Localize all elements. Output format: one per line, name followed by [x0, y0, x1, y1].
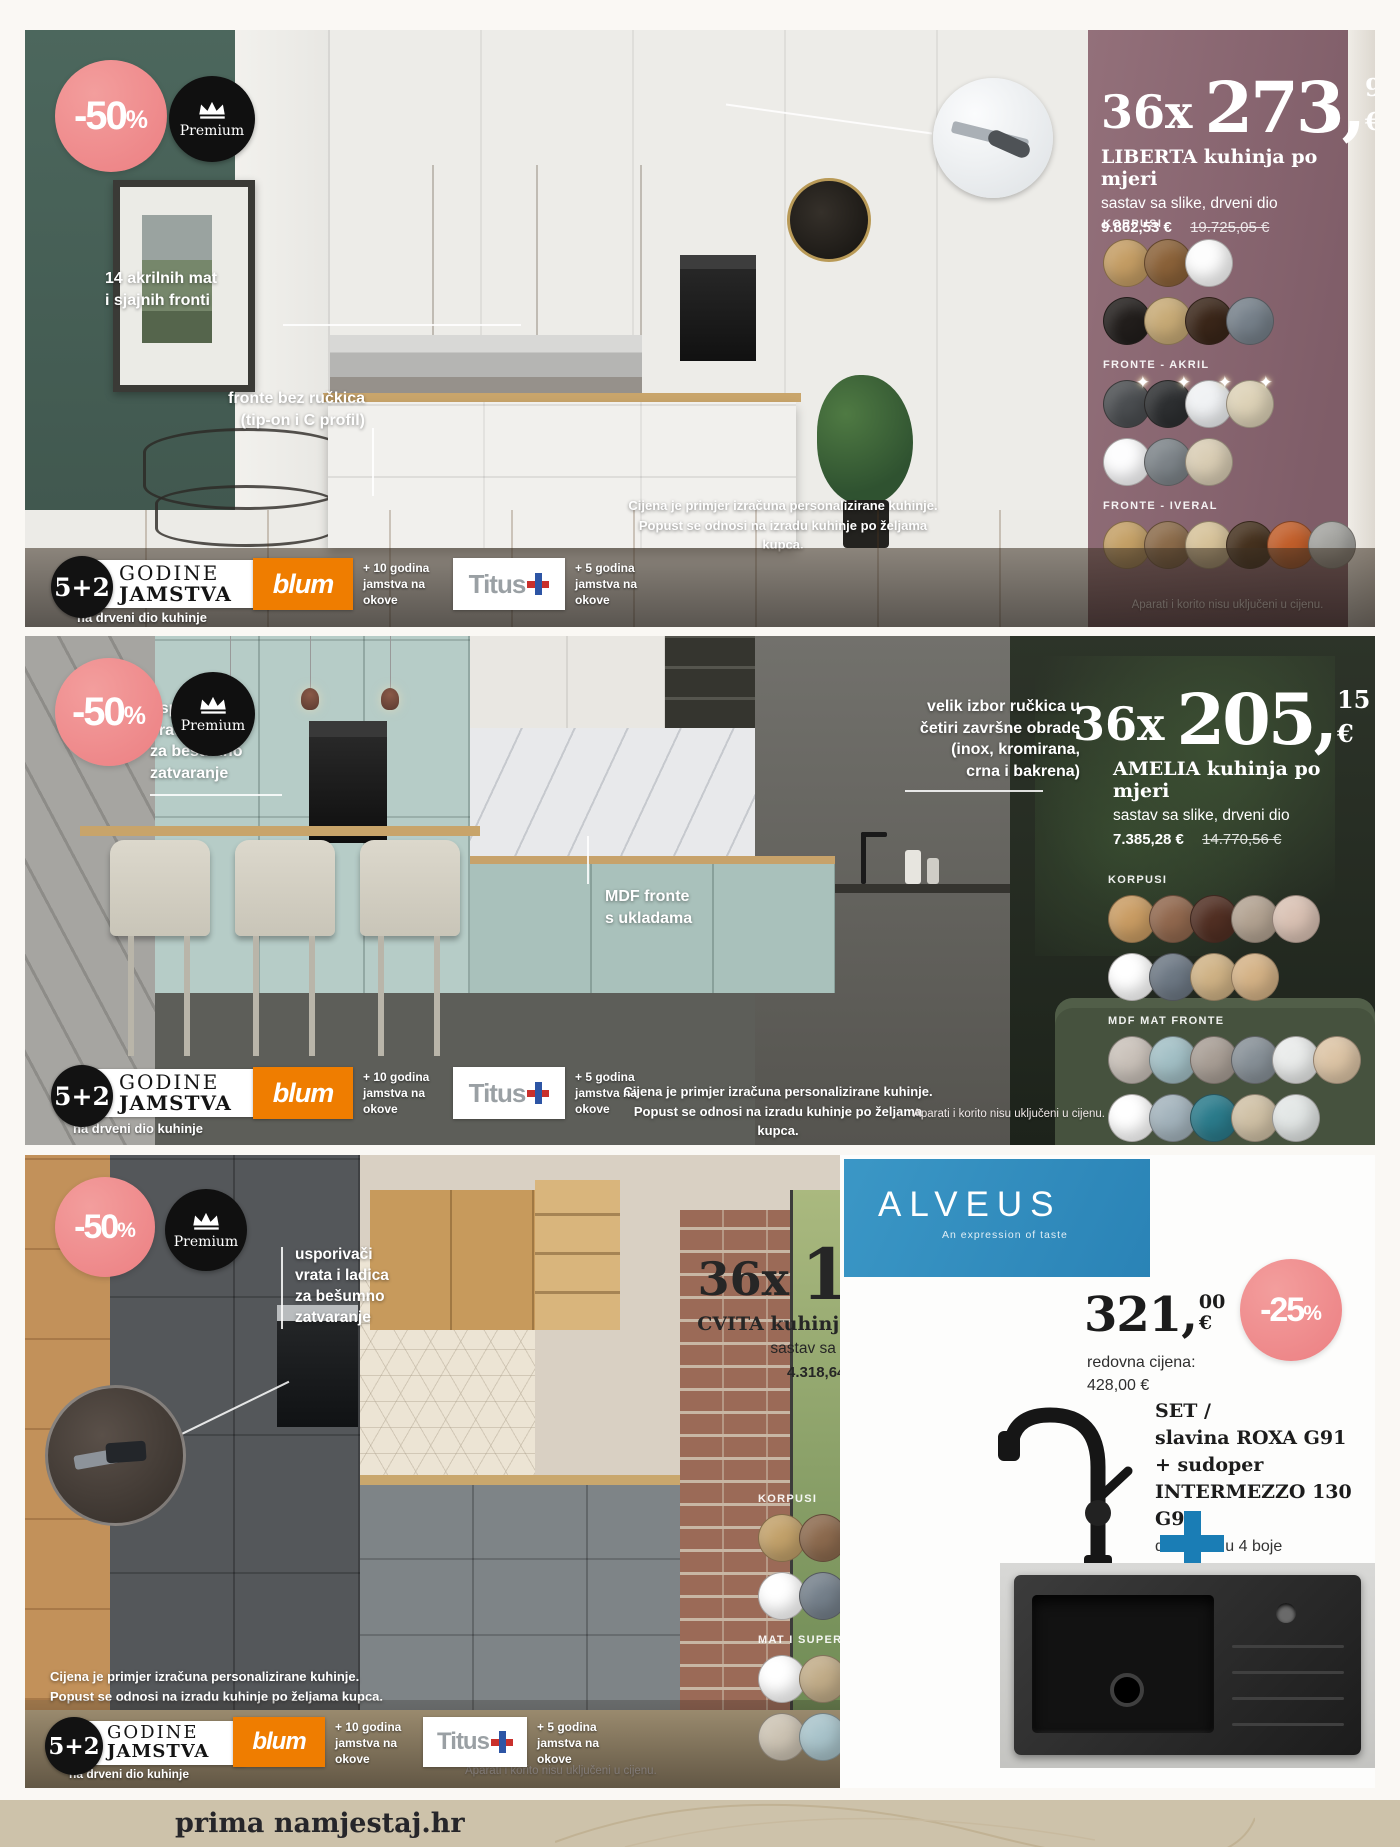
callout-acrylic-fronts: 14 akrilnih mat i sjajnih fronti — [105, 268, 217, 311]
callout-line — [905, 790, 1043, 792]
discount-badge-25: -25% — [1240, 1259, 1342, 1361]
alveus-offer-panel: ALVEUS An expression of taste -25% 321, … — [840, 1155, 1375, 1788]
swatch-group-label: KORPUSI — [1103, 218, 1348, 230]
color-swatch — [1185, 239, 1233, 287]
discount-badge-50: -50% — [55, 1177, 155, 1277]
pendant-light — [310, 636, 311, 688]
hinge-damper-icon — [105, 1441, 146, 1464]
installments-count: 36x — [698, 1261, 789, 1303]
discount-value: -50 — [74, 94, 126, 139]
warranty-years-badge: 5+2 — [45, 1717, 103, 1775]
discount-badge-50: -50% — [55, 658, 163, 766]
percent-sign: % — [124, 702, 146, 731]
swatch-group-label: MDF MAT FRONTE — [1108, 1015, 1368, 1027]
hinge-detail-inset — [45, 1385, 186, 1526]
blum-logo: blum — [253, 558, 353, 610]
price-cents: 00 — [1199, 1293, 1225, 1312]
warranty-years-badge: 5+2 — [51, 1065, 113, 1127]
warranty-label-box: GODINE JAMSTVA — [91, 1069, 269, 1117]
percent-sign: % — [1303, 1302, 1322, 1326]
vase — [927, 858, 939, 884]
installment-price: 36x 205, 15 € — [1073, 688, 1363, 748]
callout-mdf-fronts: MDF fronte s ukladama — [605, 886, 692, 929]
drain-icon — [1110, 1673, 1144, 1707]
built-in-oven — [309, 721, 387, 843]
titus-plus-icon — [527, 573, 549, 595]
callout-handle-finishes: velik izbor ručkica u četiri završne obr… — [845, 696, 1080, 782]
warranty-godine: GODINE — [119, 563, 269, 584]
alveus-tagline: An expression of taste — [942, 1229, 1150, 1241]
swatch-group-label: FRONTE - IVERAL — [1103, 500, 1348, 512]
price-now: 7.385,28 € — [1113, 831, 1184, 848]
premium-label: Premium — [174, 1234, 238, 1250]
installments-count: 36x — [1073, 706, 1164, 748]
installments-count: 36x — [1101, 94, 1192, 136]
swatch-row — [1108, 895, 1368, 941]
pendant-light — [390, 636, 391, 688]
set-label: SET / — [1155, 1398, 1375, 1425]
titus-warranty-note: + 5 godina jamstva na okove — [537, 1719, 599, 1768]
kitchen-name: LIBERTA kuhinja po mjeri — [1101, 146, 1346, 190]
warranty-bar: 5+2 GODINE JAMSTVA na drveni dio kuhinje… — [25, 1703, 840, 1788]
white-upper-cabinets — [470, 636, 665, 728]
currency-symbol: € — [1337, 722, 1370, 746]
premium-label: Premium — [180, 123, 244, 139]
warranty-years-badge: 5+2 — [51, 556, 113, 618]
crown-icon — [189, 1211, 223, 1231]
price-amount: 321, — [1084, 1296, 1197, 1335]
percent-sign: % — [117, 1219, 136, 1243]
currency-symbol: € — [1365, 110, 1375, 134]
countertop — [360, 1475, 700, 1485]
callout-line-vertical — [281, 1247, 283, 1329]
built-in-oven — [680, 255, 756, 361]
color-swatch — [1231, 953, 1279, 1001]
faucet-spout — [861, 832, 887, 837]
round-wall-decor — [787, 178, 871, 262]
swatch-row — [1103, 297, 1348, 343]
black-faucet-image — [980, 1387, 1150, 1572]
decorative-curves — [555, 1800, 1255, 1847]
color-swatch — [1226, 297, 1274, 345]
promo-card-liberta: 36x 273, 96 € LIBERTA kuhinja po mjeri s… — [25, 30, 1375, 627]
titus-wordmark: Titus — [469, 1078, 526, 1109]
amelia-price-block: 36x 205, 15 € AMELIA kuhinja po mjeri sa… — [1073, 688, 1363, 848]
callout-line — [150, 794, 282, 796]
discount-badge-50: -50% — [55, 60, 167, 172]
kitchen-prices: 7.385,28 € 14.770,56 € — [1113, 831, 1363, 848]
marble-backsplash — [470, 728, 755, 856]
plant — [817, 375, 913, 505]
titus-plus-icon — [491, 1731, 513, 1753]
regular-price-label: redovna cijena: — [1087, 1351, 1196, 1374]
color-swatch — [1185, 438, 1233, 486]
premium-badge: Premium — [171, 672, 255, 756]
installment-price: 36x 273, 96 € — [1101, 76, 1346, 136]
bar-stool — [235, 840, 335, 936]
wood-upper-cabinets — [330, 165, 642, 335]
drainboard-groove — [1232, 1723, 1344, 1726]
warranty-jamstva: JAMSTVA — [119, 1093, 269, 1114]
titus-logo: Titus — [453, 558, 565, 610]
titus-logo: Titus — [453, 1067, 565, 1119]
warranty-godine: GODINE — [119, 1072, 269, 1093]
titus-logo: Titus — [423, 1717, 527, 1767]
titus-warranty-note: + 5 godina jamstva na okove — [575, 1069, 637, 1118]
wood-upper-cabinets — [370, 1190, 535, 1330]
installment-price: 321, 00 € — [1084, 1293, 1225, 1335]
breakfast-bar — [80, 826, 480, 836]
promo-card-cvita: -50% Premium usporivači vrata i ladica z… — [25, 1155, 1375, 1788]
titus-warranty-note: + 5 godina jamstva na okove — [575, 560, 637, 609]
faucet-hole — [1276, 1603, 1296, 1623]
swatch-row — [1103, 438, 1348, 484]
callout-line-vertical — [372, 428, 374, 496]
blum-logo: blum — [253, 1067, 353, 1119]
percent-sign: % — [126, 106, 148, 135]
kitchen-name: AMELIA kuhinja po mjeri — [1113, 758, 1363, 802]
swatch-row: ✦✦✦✦ — [1103, 380, 1348, 426]
discount-value: -50 — [74, 1208, 117, 1247]
price-amount: 205, — [1176, 691, 1335, 748]
alveus-logo: ALVEUS An expression of taste — [844, 1159, 1150, 1277]
bar-stool — [360, 840, 460, 936]
crown-icon — [195, 100, 229, 120]
warranty-bar: 5+2 GODINE JAMSTVA na drveni dio kuhinje… — [25, 1061, 1375, 1145]
callout-line-vertical — [587, 836, 589, 884]
page-footer: prima namjestaj.hr — [0, 1800, 1400, 1847]
price-cents: 15 — [1337, 688, 1370, 712]
price-example-disclaimer: Cijena je primjer izračuna personalizira… — [623, 496, 943, 555]
warranty-label-box: GODINE JAMSTVA — [81, 1721, 245, 1765]
sparkle-icon: ✦ — [1259, 373, 1273, 393]
warranty-bar: 5+2 GODINE JAMSTVA na drveni dio kuhinje… — [25, 548, 1375, 627]
sink-basin — [1032, 1595, 1214, 1733]
swatch-group-label: KORPUSI — [1108, 874, 1368, 886]
premium-badge: Premium — [165, 1189, 247, 1271]
price-old: 14.770,56 € — [1202, 831, 1281, 848]
drainboard-groove — [1232, 1697, 1344, 1700]
warranty-label-box: GODINE JAMSTVA — [91, 560, 269, 608]
titus-plus-icon — [527, 1082, 549, 1104]
discount-value: -50 — [72, 690, 124, 735]
warranty-jamstva: JAMSTVA — [107, 1743, 245, 1762]
kitchen-detail: sastav sa slike, drveni dio — [1113, 807, 1363, 825]
callout-handleless: fronte bez ručkica (tip-on i C profil) — [175, 388, 365, 431]
crown-icon — [196, 695, 230, 715]
dark-open-shelf — [665, 636, 755, 728]
premium-label: Premium — [181, 718, 245, 734]
countertop — [323, 393, 801, 402]
color-swatch: ✦ — [1226, 380, 1274, 428]
swatch-row — [1108, 953, 1368, 999]
granite-sink — [1014, 1575, 1361, 1755]
premium-badge: Premium — [169, 76, 255, 162]
blum-logo: blum — [233, 1717, 325, 1767]
discount-value: -25 — [1260, 1291, 1303, 1330]
titus-wordmark: Titus — [437, 1728, 489, 1756]
alveus-wordmark: ALVEUS — [878, 1185, 1150, 1225]
liberta-swatches: KORPUSIFRONTE - AKRIL✦✦✦✦FRONTE - IVERAL — [1103, 202, 1348, 579]
hinge-damper-icon — [986, 128, 1033, 161]
swatch-row — [1103, 239, 1348, 285]
swatch-group-label: FRONTE - AKRIL — [1103, 359, 1348, 371]
titus-wordmark: Titus — [469, 569, 526, 600]
color-swatch — [1272, 895, 1320, 943]
gray-lower-cabinets — [360, 1485, 700, 1710]
hinge-detail-inset — [933, 78, 1053, 198]
bar-stool — [110, 840, 210, 936]
callout-soft-close: usporivači vrata i ladica za bešumno zat… — [295, 1245, 389, 1329]
drainboard-groove — [1232, 1671, 1344, 1674]
drainboard-groove — [1232, 1645, 1344, 1648]
brand-wordmark: prima namjestaj.hr — [175, 1800, 465, 1847]
warranty-jamstva: JAMSTVA — [119, 584, 269, 605]
blum-warranty-note: + 10 godina jamstva na okove — [363, 1069, 429, 1118]
price-amount: 273, — [1204, 79, 1363, 136]
skyline-backsplash — [330, 335, 642, 393]
faucet — [861, 832, 866, 884]
open-shelf-unit — [535, 1180, 620, 1330]
callout-line — [283, 324, 521, 326]
alveus-price-block: 321, 00 € — [1084, 1293, 1225, 1335]
blum-warranty-note: + 10 godina jamstva na okove — [363, 560, 429, 609]
sink-photo — [1000, 1563, 1375, 1768]
currency-symbol: € — [1199, 1314, 1225, 1333]
vase — [905, 850, 921, 884]
promo-card-amelia: -50% Premium usporivači vrata i ladica z… — [25, 636, 1375, 1145]
price-cents: 96 — [1365, 76, 1375, 100]
blum-warranty-note: + 10 godina jamstva na okove — [335, 1719, 401, 1768]
